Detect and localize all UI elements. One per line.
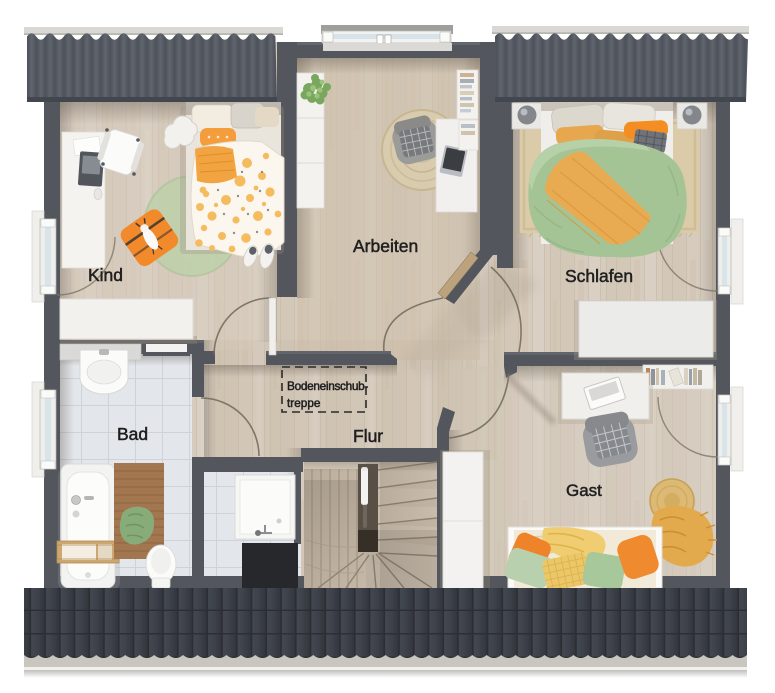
svg-text:Flur: Flur: [353, 426, 383, 446]
svg-text:Kind: Kind: [88, 265, 123, 285]
svg-text:treppe: treppe: [287, 396, 321, 410]
svg-text:Bad: Bad: [117, 424, 148, 444]
svg-text:Gast: Gast: [566, 481, 602, 500]
svg-text:Bodeneinschub-: Bodeneinschub-: [287, 379, 368, 393]
svg-text:Arbeiten: Arbeiten: [353, 236, 418, 256]
svg-text:Schlafen: Schlafen: [565, 266, 633, 286]
